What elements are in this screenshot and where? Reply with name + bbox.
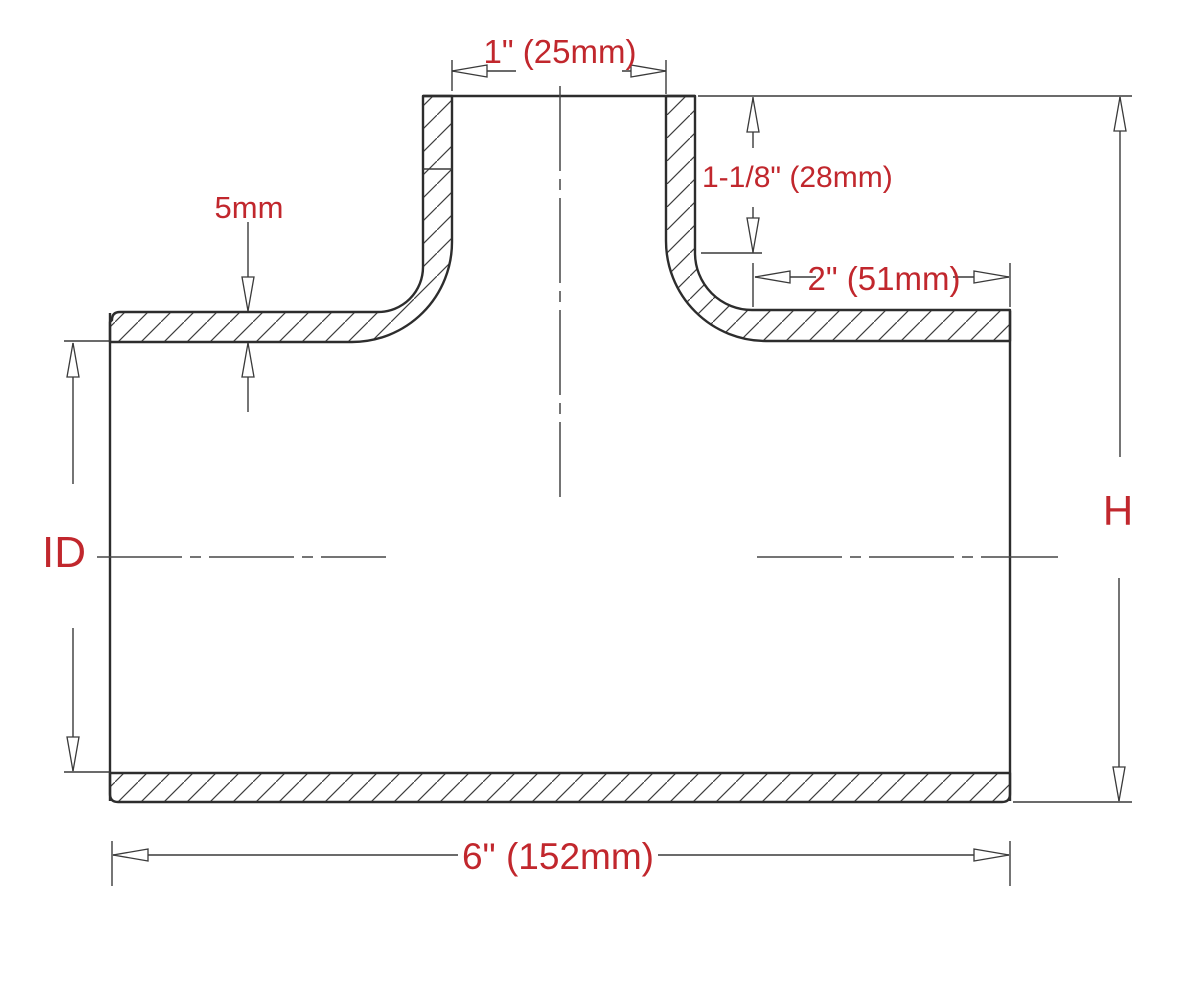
arrowhead-down [242, 277, 254, 311]
dim-label-branch-id: 1" (25mm) [484, 33, 637, 70]
dim-label-overall-length: 6" (152mm) [462, 836, 654, 877]
arrowhead-up [242, 343, 254, 377]
dim-label-wall-thickness: 5mm [215, 190, 284, 225]
dim-overall-length: 6" (152mm) [112, 836, 1010, 886]
bottom-wall-section [110, 773, 1010, 802]
t-coupler-drawing: 1" (25mm) 1-1/8" (28mm) 2" (51mm) 5mm I [0, 0, 1197, 1002]
dim-label-branch-length: 1-1/8" (28mm) [702, 161, 893, 194]
drawing-canvas: 1" (25mm) 1-1/8" (28mm) 2" (51mm) 5mm I [0, 0, 1197, 1002]
arrowhead-down [747, 218, 759, 252]
arrowhead-left [113, 849, 148, 861]
dim-branch-length: 1-1/8" (28mm) [701, 97, 893, 253]
arrowhead-up [67, 343, 79, 377]
dim-label-inner-diameter: ID [42, 528, 86, 577]
dim-branch-inner-diameter: 1" (25mm) [452, 33, 666, 94]
dim-label-height: H [1103, 487, 1133, 534]
arrowhead-up [1114, 97, 1126, 131]
dim-leg-length: 2" (51mm) [753, 260, 1010, 307]
arrowhead-down [1113, 767, 1125, 801]
dim-label-leg-length: 2" (51mm) [808, 260, 961, 297]
arrowhead-up [747, 98, 759, 132]
dim-wall-thickness: 5mm [215, 190, 284, 412]
arrowhead-left [452, 65, 487, 77]
arrowhead-right [974, 849, 1009, 861]
dim-height: H [698, 96, 1133, 802]
right-wall-section [666, 96, 1010, 341]
arrowhead-right [974, 271, 1009, 283]
arrowhead-left [755, 271, 790, 283]
arrowhead-down [67, 737, 79, 771]
